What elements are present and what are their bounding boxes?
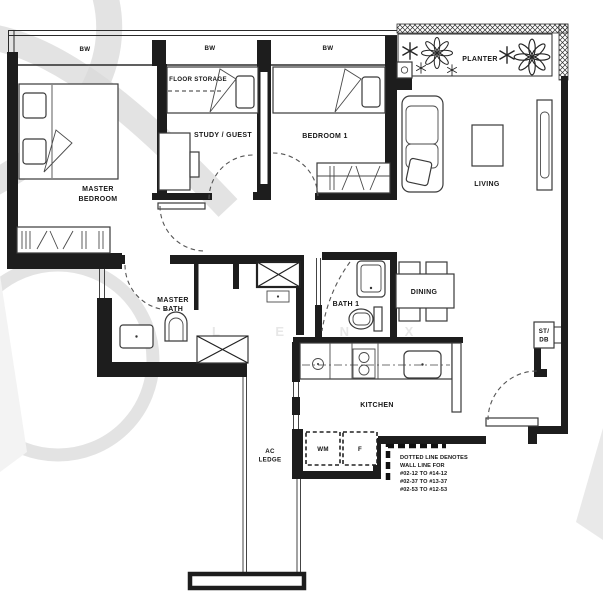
flower-star-icon	[402, 42, 417, 60]
master-bedroom-label-1: MASTER	[82, 186, 114, 193]
desk-chair	[190, 152, 199, 177]
bath1-label: BATH 1	[333, 301, 360, 308]
wall-line-note: DOTTED LINE DENOTES WALL LINE FOR #02-12…	[400, 455, 468, 493]
dining-chair	[426, 307, 447, 321]
dining-chair	[399, 307, 420, 321]
kitchen-area: KITCHEN	[300, 343, 461, 412]
ac-ledge-label-2: LEDGE	[259, 457, 282, 464]
door-leaf	[486, 418, 538, 426]
floor-plan: L E N X PLANTER	[0, 0, 603, 600]
master-bedroom-label-2: BEDROOM	[78, 196, 117, 203]
watermark-wedge-left	[0, 275, 27, 472]
tall-unit	[452, 343, 461, 412]
bw-label-bedroom1: BW	[323, 45, 334, 52]
master-bath-label-1: MASTER	[157, 297, 189, 304]
study-guest-label: STUDY / GUEST	[194, 132, 252, 139]
ac-ledge: AC LEDGE	[190, 377, 304, 588]
tv-console	[537, 100, 552, 190]
fridge-label: F	[358, 446, 362, 453]
coffee-table	[472, 125, 503, 166]
wm-label: WM	[317, 446, 329, 453]
sofa-cushion	[406, 158, 433, 186]
pillow	[23, 93, 46, 118]
ac-ledge-label-1: AC	[265, 448, 275, 455]
shower-stall	[257, 262, 300, 302]
bw-label-master: BW	[80, 46, 91, 53]
ac-ledge-foot	[190, 574, 304, 588]
planter-hatch-right	[559, 24, 568, 80]
st-db-label-1: ST/	[539, 328, 550, 335]
door-swing-arc	[160, 206, 205, 251]
kitchen-label: KITCHEN	[360, 402, 394, 409]
note-line-1: DOTTED LINE DENOTES	[400, 455, 468, 461]
pillow	[23, 139, 46, 164]
watermark-wedge-right	[576, 428, 603, 540]
dining-label: DINING	[411, 289, 438, 296]
floor-plan-page: L E N X PLANTER	[0, 0, 603, 600]
living-room: LIVING	[402, 96, 552, 192]
bedroom1-room: BEDROOM 1	[273, 67, 390, 198]
flower-star-icon	[499, 46, 514, 64]
master-wardrobe	[17, 227, 110, 253]
note-line-3: #02-12 TO #14-12	[400, 471, 447, 477]
door-swing-arc	[488, 371, 537, 420]
note-line-5: #02-53 TO #12-53	[400, 487, 447, 493]
toilet-cistern	[374, 307, 382, 331]
planter-hatch-top	[397, 24, 568, 33]
master-bath-room: MASTER BATH	[100, 265, 249, 363]
living-label: LIVING	[474, 181, 500, 188]
utility-box	[397, 62, 412, 78]
note-line-2: WALL LINE FOR	[400, 463, 445, 469]
flower-star-icon	[416, 62, 426, 73]
pillow	[362, 77, 380, 107]
door-leaf	[158, 203, 205, 209]
door-swing-arc	[322, 262, 350, 331]
bedroom1-label: BEDROOM 1	[302, 133, 348, 140]
dining-area: DINING	[396, 262, 454, 321]
flower-icon	[514, 39, 550, 75]
pillow	[236, 76, 254, 108]
flower-star-icon	[447, 64, 457, 75]
door-swing-arc	[273, 153, 318, 198]
entry-door	[486, 371, 538, 426]
floor-storage-label: FLOOR STORAGE	[169, 76, 227, 83]
planter-label: PLANTER	[462, 56, 498, 63]
st-db-label-2: DB	[539, 337, 549, 344]
toilet-icon	[165, 312, 187, 341]
bw-label-study: BW	[205, 45, 216, 52]
bath1-room: BATH 1	[322, 261, 385, 331]
st-db-closet: ST/ DB	[534, 322, 561, 348]
note-line-4: #02-37 TO #13-37	[400, 479, 447, 485]
planter-area: PLANTER	[397, 24, 568, 80]
flower-icon	[422, 38, 453, 69]
desk	[159, 133, 190, 190]
